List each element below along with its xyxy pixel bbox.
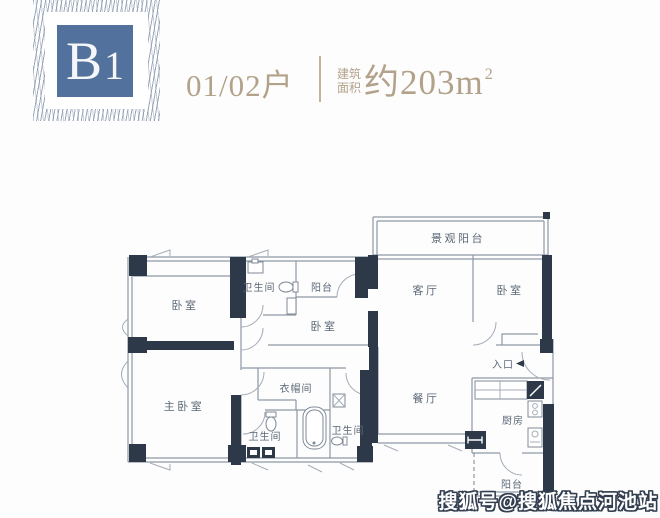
- watermark: 搜狐号@搜狐焦点河池站: [438, 487, 658, 514]
- room-label-bedroom-east: 卧室: [497, 283, 524, 297]
- room-label-living-room: 客厅: [413, 283, 440, 297]
- room-labels: 卧室 卫生间 阳台 卧室 主卧室 衣帽间 卫生间 卫生间 客厅 卧室 景观阳台 …: [164, 231, 524, 491]
- room-label-balcony-top: 阳台: [311, 281, 333, 294]
- room-label-entrance: 入口: [492, 360, 514, 371]
- exterior-walls: [128, 217, 553, 496]
- room-label-kitchen: 厨房: [502, 414, 524, 427]
- room-label-master-bedroom: 主卧室: [164, 399, 205, 413]
- floor-plan: 卧室 卫生间 阳台 卧室 主卧室 衣帽间 卫生间 卫生间 客厅 卧室 景观阳台 …: [0, 0, 660, 518]
- room-label-bathroom-top: 卫生间: [243, 281, 276, 294]
- room-label-bedroom-nw: 卧室: [172, 298, 199, 312]
- room-label-bathroom-right: 卫生间: [332, 424, 365, 437]
- flyer-page: B 1 01/02户 建筑 面积 约203m2: [0, 0, 660, 518]
- room-label-bedroom-mid: 卧室: [311, 319, 338, 333]
- window-marks: [122, 250, 463, 472]
- room-label-bathroom-left: 卫生间: [249, 430, 282, 443]
- room-label-dining-room: 餐厅: [413, 391, 440, 405]
- room-label-scenic-balcony: 景观阳台: [431, 231, 485, 245]
- room-label-cloakroom: 衣帽间: [280, 382, 313, 395]
